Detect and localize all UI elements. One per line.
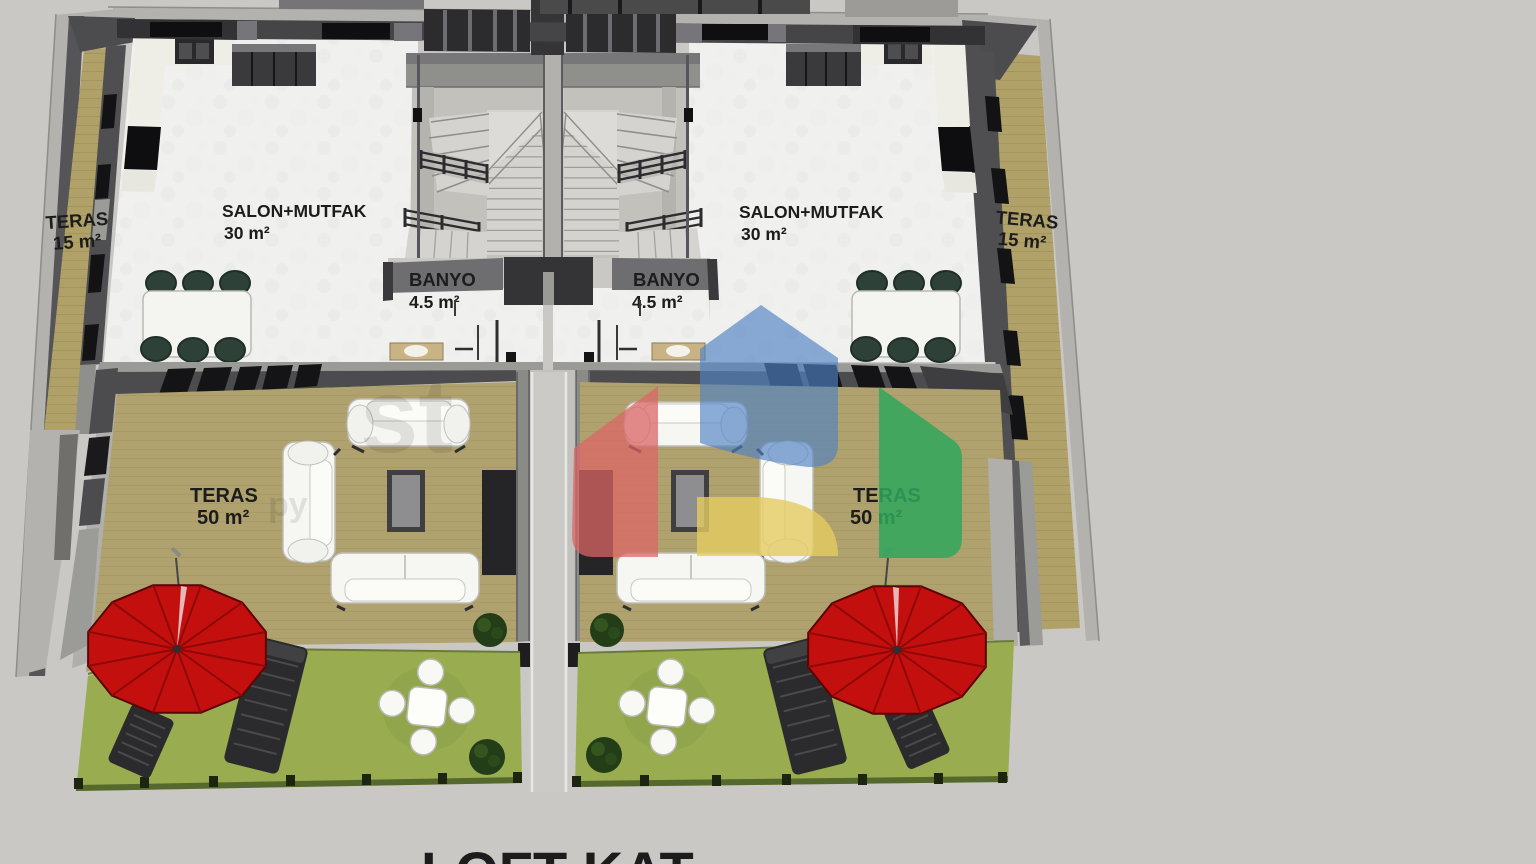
svg-text:15 m²: 15 m² bbox=[52, 229, 102, 253]
svg-text:50 m²: 50 m² bbox=[197, 507, 250, 529]
svg-text:4.5 m²: 4.5 m² bbox=[409, 292, 460, 312]
svg-text:15 m²: 15 m² bbox=[997, 228, 1047, 253]
svg-text:TERAS: TERAS bbox=[190, 485, 258, 507]
svg-text:LOFT KAT: LOFT KAT bbox=[421, 840, 694, 864]
svg-text:BANYO: BANYO bbox=[409, 269, 476, 290]
svg-text:30 m²: 30 m² bbox=[741, 224, 787, 244]
svg-text:30 m²: 30 m² bbox=[224, 223, 270, 243]
svg-text:SALON+MUTFAK: SALON+MUTFAK bbox=[739, 202, 884, 222]
svg-text:st: st bbox=[360, 358, 453, 475]
svg-text:py: py bbox=[268, 486, 308, 524]
svg-text:SALON+MUTFAK: SALON+MUTFAK bbox=[222, 201, 367, 221]
svg-text:BANYO: BANYO bbox=[633, 269, 700, 290]
